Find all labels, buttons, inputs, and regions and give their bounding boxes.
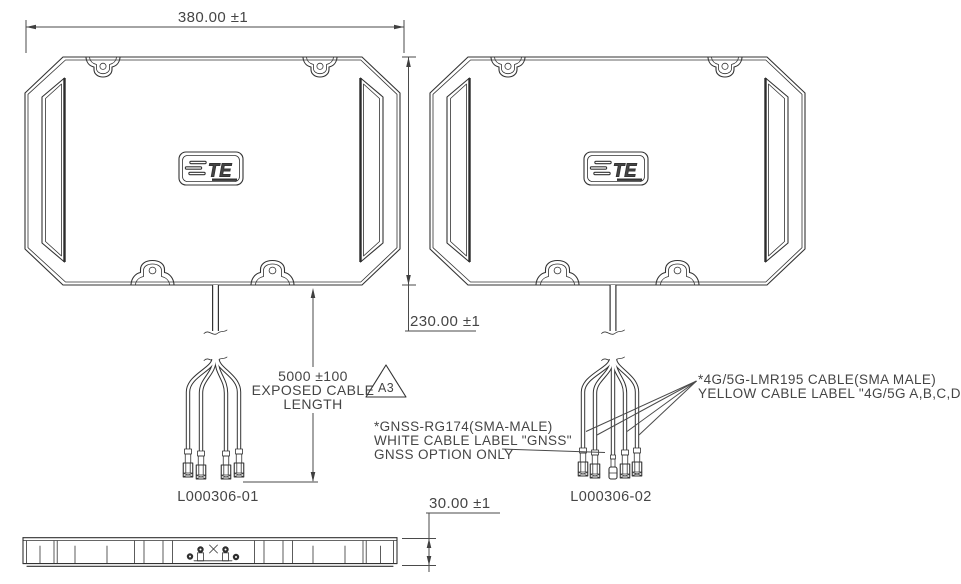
dimension-height-label: 230.00 ±1 xyxy=(410,313,480,330)
antenna-side-view xyxy=(23,538,397,567)
dimension-width-label: 380.00 ±1 xyxy=(178,9,248,26)
sma-connector xyxy=(221,451,231,479)
dimension-cable-length: 5000 ±100 EXPOSED CABLE LENGTH xyxy=(243,288,374,482)
sma-connector xyxy=(196,451,206,479)
sma-connector xyxy=(632,448,642,476)
part-number-right: L000306-02 xyxy=(570,489,651,505)
sma-connector xyxy=(183,449,193,477)
note-4g5g-line-2: YELLOW CABLE LABEL "4G/5G A,B,C,D" xyxy=(698,386,961,401)
note-4g5g: *4G/5G-LMR195 CABLE(SMA MALE) YELLOW CAB… xyxy=(586,372,961,435)
dimension-thickness-label: 30.00 ±1 xyxy=(429,495,490,512)
note-gnss: *GNSS-RG174(SMA-MALE) WHITE CABLE LABEL … xyxy=(374,419,605,462)
antenna-top-view-right xyxy=(430,57,805,285)
note-gnss-line-1: *GNSS-RG174(SMA-MALE) xyxy=(374,419,553,434)
dimension-width: 380.00 ±1 xyxy=(26,9,404,53)
note-gnss-line-3: GNSS OPTION ONLY xyxy=(374,447,514,462)
note-4g5g-line-1: *4G/5G-LMR195 CABLE(SMA MALE) xyxy=(698,372,936,387)
leader-lines-4g5g xyxy=(586,381,697,435)
cable-bundle-left xyxy=(183,285,244,479)
note-gnss-line-2: WHITE CABLE LABEL "GNSS" xyxy=(374,433,572,448)
sma-connector xyxy=(620,450,630,478)
gnss-connector xyxy=(609,455,617,479)
dimension-thickness: 30.00 ±1 xyxy=(402,495,500,572)
antenna-top-view-left xyxy=(25,57,400,285)
cable-bundle-right xyxy=(578,285,642,479)
revision-label: A3 xyxy=(378,381,394,395)
technical-drawing: TE xyxy=(0,0,961,584)
leader-line-gnss xyxy=(502,449,605,453)
sma-connector xyxy=(590,450,600,478)
part-number-left: L000306-01 xyxy=(177,489,258,505)
cable-length-label-2: LENGTH xyxy=(283,396,342,412)
side-view-connectors xyxy=(187,545,239,561)
sma-connector xyxy=(234,449,244,477)
